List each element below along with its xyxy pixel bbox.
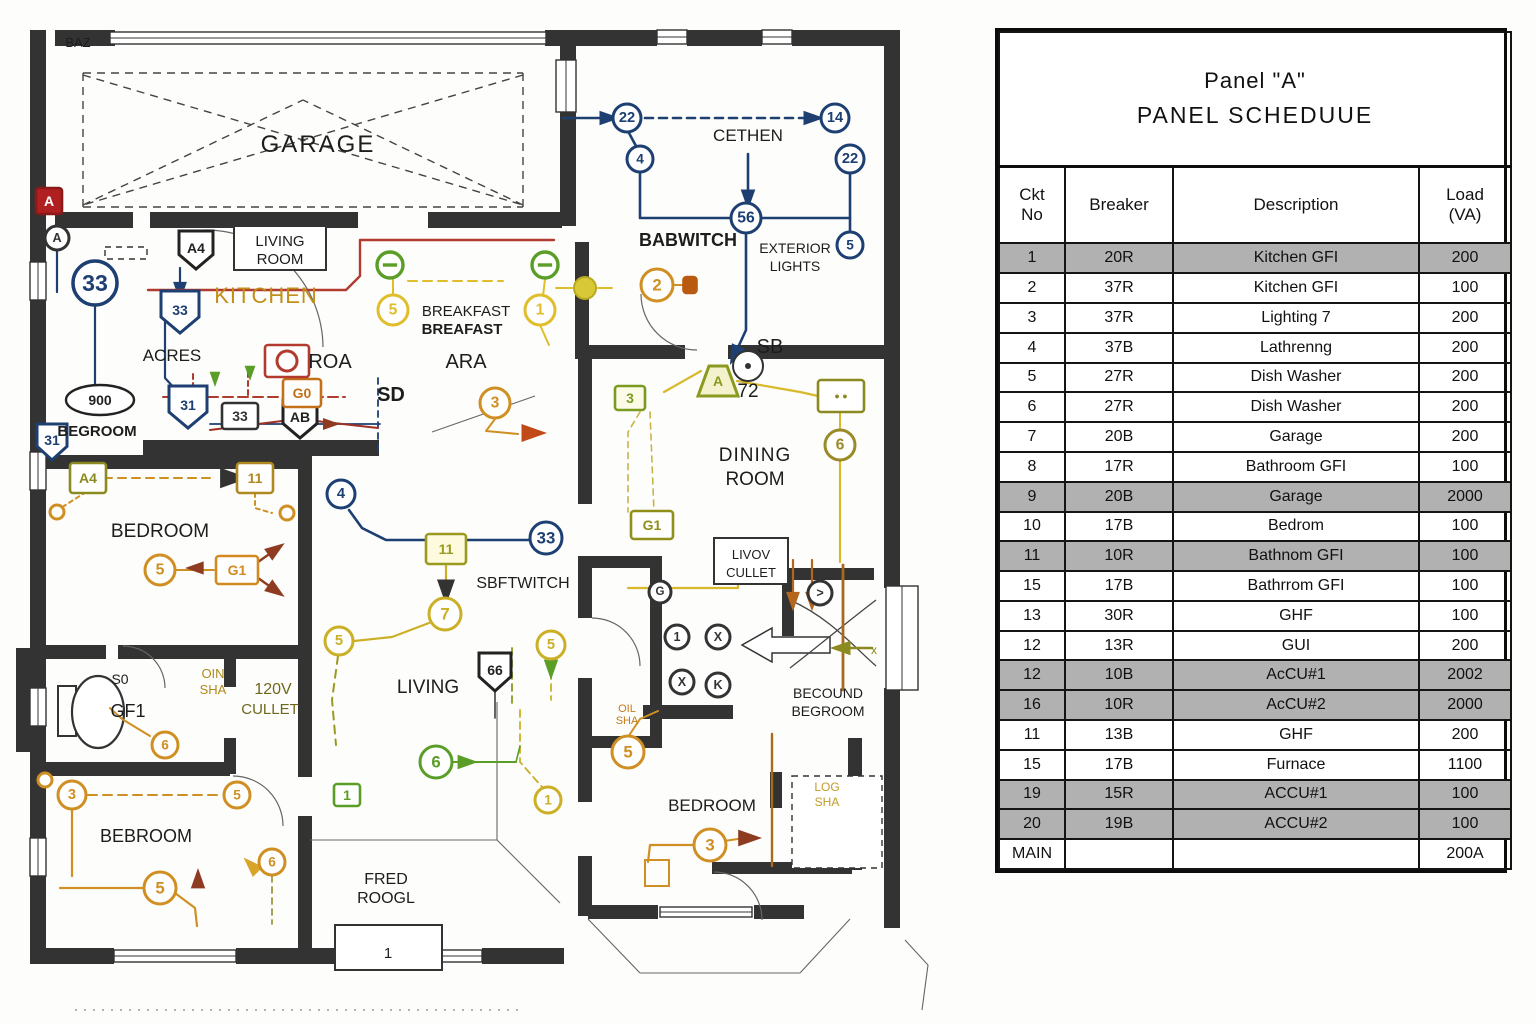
label-sbftwitch: SBFTWITCH	[476, 575, 569, 592]
col-header-load: Load (VA)	[1419, 166, 1511, 243]
door-swing-curve	[790, 600, 876, 668]
wall	[118, 645, 306, 659]
badge-label-4: 4	[337, 486, 346, 502]
cell-load: 2002	[1419, 660, 1511, 690]
cell-description: Kitchen GFI	[1173, 273, 1419, 303]
cell-breaker: 10R	[1065, 541, 1173, 571]
wall	[236, 948, 308, 964]
wall	[782, 568, 874, 580]
wall	[298, 816, 312, 964]
circuit-badge-c	[38, 773, 52, 787]
cell-description: ACCU#2	[1173, 809, 1419, 839]
table-row: 817RBathroom GFI100	[999, 452, 1511, 482]
label-living: LIVING	[397, 677, 459, 698]
table-row: 527RDish Washer200	[999, 363, 1511, 393]
cell-description: Dish Washer	[1173, 363, 1419, 393]
badge-label-k: K	[713, 678, 722, 692]
label-sd: SD	[377, 384, 405, 406]
cell-description: Kitchen GFI	[1173, 243, 1419, 273]
wire	[628, 412, 640, 512]
cell-load: 200	[1419, 422, 1511, 452]
label-bebroom: BEBROOM	[100, 826, 192, 846]
wall	[30, 762, 230, 776]
badge-label-1: 1	[673, 630, 680, 644]
cell-load: 200	[1419, 303, 1511, 333]
circuit-badge-c	[280, 506, 294, 520]
label-sha: SHA	[200, 682, 227, 697]
wall	[298, 645, 312, 777]
label-sb: SB	[757, 336, 784, 358]
cell-load: 100	[1419, 512, 1511, 542]
badge-label-33: 33	[232, 408, 248, 424]
badge-label-g1: G1	[228, 562, 247, 578]
label-120v: 120V	[254, 681, 292, 698]
label-roogl: ROOGL	[357, 890, 415, 907]
wire	[543, 279, 545, 296]
cell-load: 200	[1419, 631, 1511, 661]
cell-ckt: 12	[999, 660, 1065, 690]
panel-schedule: Panel "A" PANEL SCHEDUUE Ckt No Breaker …	[995, 28, 1507, 873]
wire	[520, 710, 543, 788]
wire	[664, 371, 701, 392]
wall	[687, 30, 762, 46]
wire	[735, 234, 746, 354]
cell-description: Garage	[1173, 482, 1419, 512]
cell-breaker: 19B	[1065, 809, 1173, 839]
cell-description: Lighting 7	[1173, 303, 1419, 333]
cell-ckt: 3	[999, 303, 1065, 333]
badge-label-ab: AB	[290, 409, 310, 425]
box-badge-	[684, 277, 697, 293]
wire-arrow	[522, 424, 548, 442]
badge-label-: ● ●	[834, 391, 847, 401]
cell-description: AcCU#1	[1173, 660, 1419, 690]
badge-label-3: 3	[491, 395, 500, 412]
cell-description: GUI	[1173, 631, 1419, 661]
table-row: 437BLathrenng200	[999, 333, 1511, 363]
panel-title: Panel "A"	[1000, 68, 1510, 94]
badge-label-7: 7	[440, 605, 449, 624]
badge-label-33: 33	[537, 529, 556, 548]
label-sha: SHA	[815, 795, 840, 809]
cell-ckt: 9	[999, 482, 1065, 512]
badge-label-33: 33	[82, 270, 108, 296]
cell-breaker	[1065, 839, 1173, 869]
cell-ckt: 15	[999, 571, 1065, 601]
thin-line	[800, 919, 850, 973]
cell-ckt: 11	[999, 720, 1065, 750]
table-row: 1110RBathnom GFI100	[999, 541, 1511, 571]
badge-label-5: 5	[156, 562, 165, 579]
cell-description: Furnace	[1173, 750, 1419, 780]
label-begroom: BEGROOM	[57, 423, 136, 440]
table-row: 1113BGHF200	[999, 720, 1511, 750]
label-breakfast: BREAKFAST	[422, 303, 510, 320]
label-oin: OIN	[201, 666, 224, 681]
label-room: ROOM	[257, 251, 304, 268]
label-log: LOG	[814, 780, 839, 794]
col-header-description: Description	[1173, 166, 1419, 243]
badge-label-11: 11	[439, 541, 454, 557]
badge-label-1: 1	[544, 793, 552, 808]
badge-label-g1: G1	[643, 517, 662, 533]
wire-arrow	[738, 830, 762, 847]
badge-label-56: 56	[737, 210, 755, 227]
wall	[428, 212, 562, 228]
wire	[650, 412, 654, 512]
cell-ckt: 2	[999, 273, 1065, 303]
panel-subtitle: PANEL SCHEDUUE	[1000, 102, 1510, 129]
wall	[588, 905, 658, 919]
label-lights: LIGHTS	[770, 258, 821, 274]
label-bedroom: BEDROOM	[668, 796, 756, 815]
panel-table-body: 120RKitchen GFI200237RKitchen GFI100337R…	[999, 243, 1511, 869]
badge-label-3: 3	[68, 787, 76, 803]
badge-label-33: 33	[172, 302, 188, 318]
cell-description: GHF	[1173, 601, 1419, 631]
cell-ckt: 15	[999, 750, 1065, 780]
wall	[30, 948, 114, 964]
cell-load: 200	[1419, 363, 1511, 393]
cell-ckt: 10	[999, 512, 1065, 542]
thin-line	[905, 940, 928, 1010]
cell-breaker: 13B	[1065, 720, 1173, 750]
wall	[884, 688, 900, 928]
cell-breaker: 37R	[1065, 273, 1173, 303]
cell-load: 200	[1419, 333, 1511, 363]
floor-plan-drawing: 221442256533A433512375553565661536G1XXK>…	[0, 0, 970, 1024]
wire-arrow	[544, 660, 558, 680]
cell-breaker: 10R	[1065, 690, 1173, 720]
table-row: 720BGarage200	[999, 422, 1511, 452]
table-row: 1517BFurnace1100	[999, 750, 1511, 780]
badge-label-6: 6	[836, 437, 845, 454]
badge-label-6: 6	[161, 738, 169, 753]
label-begroom: BEGROOM	[791, 703, 864, 719]
label-babwitch: BABWITCH	[639, 230, 737, 250]
badge-label-6: 6	[268, 855, 276, 870]
cell-description: ACCU#1	[1173, 780, 1419, 810]
circuit-badge-c	[50, 505, 64, 519]
vent-symbol	[105, 247, 147, 259]
wall	[30, 645, 106, 659]
cell-breaker: 37B	[1065, 333, 1173, 363]
cell-load: 100	[1419, 452, 1511, 482]
badge-label-14: 14	[827, 110, 844, 126]
wire-arrow	[185, 561, 204, 574]
wall	[575, 30, 657, 46]
cell-ckt: 12	[999, 631, 1065, 661]
cell-ckt: 11	[999, 541, 1065, 571]
table-row: 1915RACCU#1100	[999, 780, 1511, 810]
table-row: 337RLighting 7200	[999, 303, 1511, 333]
cell-load: 2000	[1419, 482, 1511, 512]
door-arc	[592, 618, 640, 666]
badge-label-11: 11	[248, 470, 263, 486]
wire-arrow	[210, 372, 221, 387]
cell-load: 100	[1419, 571, 1511, 601]
wire-arrowhead	[264, 537, 289, 560]
cell-load: 100	[1419, 780, 1511, 810]
cell-description: Bedrom	[1173, 512, 1419, 542]
label-oil: OIL	[618, 703, 636, 715]
cell-description: Dish Washer	[1173, 392, 1419, 422]
wire	[640, 173, 729, 218]
badge-label-a4: A4	[187, 240, 205, 256]
col-header-ckt: Ckt No	[999, 166, 1065, 243]
cell-ckt: 20	[999, 809, 1065, 839]
wall	[30, 30, 46, 262]
label-room: ROOM	[725, 469, 784, 490]
cell-breaker: 17R	[1065, 452, 1173, 482]
cell-breaker: 20B	[1065, 422, 1173, 452]
badge-label-5: 5	[623, 743, 632, 762]
thin-line	[588, 919, 640, 973]
wire-arrow	[245, 366, 256, 381]
badge-label-5: 5	[547, 637, 555, 653]
cell-description: GHF	[1173, 720, 1419, 750]
cell-ckt: 19	[999, 780, 1065, 810]
cell-ckt: 1	[999, 243, 1065, 273]
wire-arrowhead	[264, 579, 289, 602]
label-baz: BAZ	[65, 35, 90, 50]
cell-ckt: 6	[999, 392, 1065, 422]
col-header-breaker: Breaker	[1065, 166, 1173, 243]
wall	[578, 556, 662, 568]
label-cullet: CULLET	[726, 565, 776, 580]
cell-description: Bathroom GFI	[1173, 452, 1419, 482]
label-becound: BECOUND	[793, 685, 863, 701]
wall	[224, 645, 236, 687]
cell-breaker: 13R	[1065, 631, 1173, 661]
badge-label-31: 31	[180, 397, 196, 413]
light-fixture-symbol	[574, 277, 596, 299]
table-row: 1517BBathrrom GFI100	[999, 571, 1511, 601]
badge-label-4: 4	[636, 152, 644, 167]
label-gf1: GF1	[110, 701, 145, 721]
badge-label-22: 22	[842, 151, 858, 167]
cell-load: 100	[1419, 809, 1511, 839]
label-bedroom: BEDROOM	[111, 521, 209, 542]
badge-label-2: 2	[652, 276, 661, 295]
panel-header-row: Ckt No Breaker Description Load (VA)	[999, 166, 1511, 243]
table-row: 1017BBedrom100	[999, 512, 1511, 542]
cell-load: 2000	[1419, 690, 1511, 720]
wire-arrow	[458, 755, 478, 769]
cell-load: 100	[1419, 541, 1511, 571]
wall	[55, 212, 133, 228]
wall	[143, 440, 379, 456]
cell-load: 200	[1419, 720, 1511, 750]
badge-label-g: G	[656, 586, 665, 598]
badge-label-1: 1	[343, 787, 351, 803]
wire	[629, 133, 636, 146]
thin-line	[497, 840, 560, 903]
table-row: 237RKitchen GFI100	[999, 273, 1511, 303]
wall	[482, 948, 564, 964]
table-row: 120RKitchen GFI200	[999, 243, 1511, 273]
label-breafast: BREAFAST	[422, 321, 503, 338]
door-arc	[641, 294, 697, 350]
wall	[578, 352, 592, 504]
cell-description: AcCU#2	[1173, 690, 1419, 720]
cell-description: Lathrenng	[1173, 333, 1419, 363]
badge-label-5: 5	[389, 302, 398, 319]
wire-arrow	[323, 418, 340, 430]
wire	[486, 419, 518, 434]
cell-load: 100	[1419, 601, 1511, 631]
label-cethen: CETHEN	[713, 126, 783, 145]
junction-dot	[745, 363, 751, 369]
badge-label-66: 66	[487, 662, 503, 678]
cell-breaker: 30R	[1065, 601, 1173, 631]
electrical-plan-screenshot: { "panel_schedule": { "title_line1": "Pa…	[0, 0, 1536, 1024]
cell-load: 1100	[1419, 750, 1511, 780]
cell-description	[1173, 839, 1419, 869]
label-1: 1	[384, 945, 392, 962]
cell-breaker: 37R	[1065, 303, 1173, 333]
fixture	[645, 860, 669, 886]
cell-ckt: 5	[999, 363, 1065, 393]
wire-arrow	[191, 868, 205, 888]
panel-title-row: Panel "A" PANEL SCHEDUUE	[999, 32, 1511, 166]
label-kitchen: KITCHEN	[214, 283, 318, 308]
badge-label-x: X	[714, 630, 723, 644]
label-s0: S0	[111, 671, 128, 687]
label-fred: FRED	[364, 871, 408, 888]
wire	[255, 493, 272, 513]
wire	[175, 893, 197, 926]
badge-label-a4: A4	[79, 470, 97, 486]
cell-breaker: 17B	[1065, 571, 1173, 601]
panel-title-cell: Panel "A" PANEL SCHEDUUE	[999, 32, 1511, 166]
badge-label-6: 6	[431, 753, 440, 772]
label-ara: ARA	[445, 351, 487, 373]
cell-ckt: MAIN	[999, 839, 1065, 869]
badge-label-a: A	[44, 193, 54, 209]
wire-arrowhead	[830, 641, 851, 656]
table-row: 1210BAcCU#12002	[999, 660, 1511, 690]
table-row: MAIN200A	[999, 839, 1511, 869]
badge-label-1: 1	[536, 302, 545, 319]
label-72: 72	[737, 381, 758, 402]
cell-breaker: 20B	[1065, 482, 1173, 512]
table-row: 2019BACCU#2100	[999, 809, 1511, 839]
circuit-badge-c	[277, 351, 297, 371]
cell-breaker: 27R	[1065, 363, 1173, 393]
badge-label-5: 5	[335, 633, 343, 649]
cell-breaker: 20R	[1065, 243, 1173, 273]
label-roa: ROA	[308, 351, 352, 373]
cell-load: 200A	[1419, 839, 1511, 869]
label-living: LIVING	[255, 233, 304, 250]
cell-description: Bathnom GFI	[1173, 541, 1419, 571]
cell-breaker: 10B	[1065, 660, 1173, 690]
wire	[354, 623, 429, 641]
cell-description: Bathrrom GFI	[1173, 571, 1419, 601]
table-row: 1610RAcCU#22000	[999, 690, 1511, 720]
badge-label-3: 3	[705, 836, 714, 855]
cell-ckt: 7	[999, 422, 1065, 452]
cell-breaker: 15R	[1065, 780, 1173, 810]
badge-label-g0: G0	[293, 385, 312, 401]
cell-breaker: 17B	[1065, 512, 1173, 542]
label-exterior: EXTERIOR	[759, 240, 831, 256]
badge-label-x: X	[678, 675, 687, 689]
label-livov: LIVOV	[732, 547, 771, 562]
badge-label-22: 22	[619, 110, 635, 126]
label-garage: GARAGE	[261, 131, 376, 158]
badge-label-5: 5	[155, 879, 164, 898]
table-row: 1330RGHF100	[999, 601, 1511, 631]
badge-label-5: 5	[846, 238, 854, 253]
label-dining: DINING	[719, 445, 792, 466]
wall	[884, 30, 900, 588]
wall	[792, 30, 892, 46]
table-row: 1213RGUI200	[999, 631, 1511, 661]
cell-breaker: 17B	[1065, 750, 1173, 780]
cell-load: 100	[1419, 273, 1511, 303]
cell-load: 200	[1419, 243, 1511, 273]
label-acres: ACRES	[143, 346, 202, 365]
badge-label-a: A	[52, 231, 61, 245]
table-row: 920BGarage2000	[999, 482, 1511, 512]
badge-label-5: 5	[233, 788, 241, 803]
cell-description: Garage	[1173, 422, 1419, 452]
wall	[298, 455, 312, 645]
wire	[332, 656, 338, 745]
label-sha: SHA	[616, 715, 639, 727]
cell-load: 200	[1419, 392, 1511, 422]
label-cullet: CULLET	[241, 701, 299, 718]
badge-label-a: A	[713, 373, 723, 389]
cell-ckt: 4	[999, 333, 1065, 363]
badge-label-900: 900	[88, 392, 112, 408]
label-x: x	[871, 643, 877, 657]
cell-ckt: 8	[999, 452, 1065, 482]
panel-schedule-table: Panel "A" PANEL SCHEDUUE Ckt No Breaker …	[998, 31, 1512, 870]
badge-label-3: 3	[626, 390, 634, 406]
cell-ckt: 13	[999, 601, 1065, 631]
cell-breaker: 27R	[1065, 392, 1173, 422]
cell-ckt: 16	[999, 690, 1065, 720]
badge-label->: >	[816, 586, 823, 600]
wire	[540, 325, 549, 345]
table-row: 627RDish Washer200	[999, 392, 1511, 422]
